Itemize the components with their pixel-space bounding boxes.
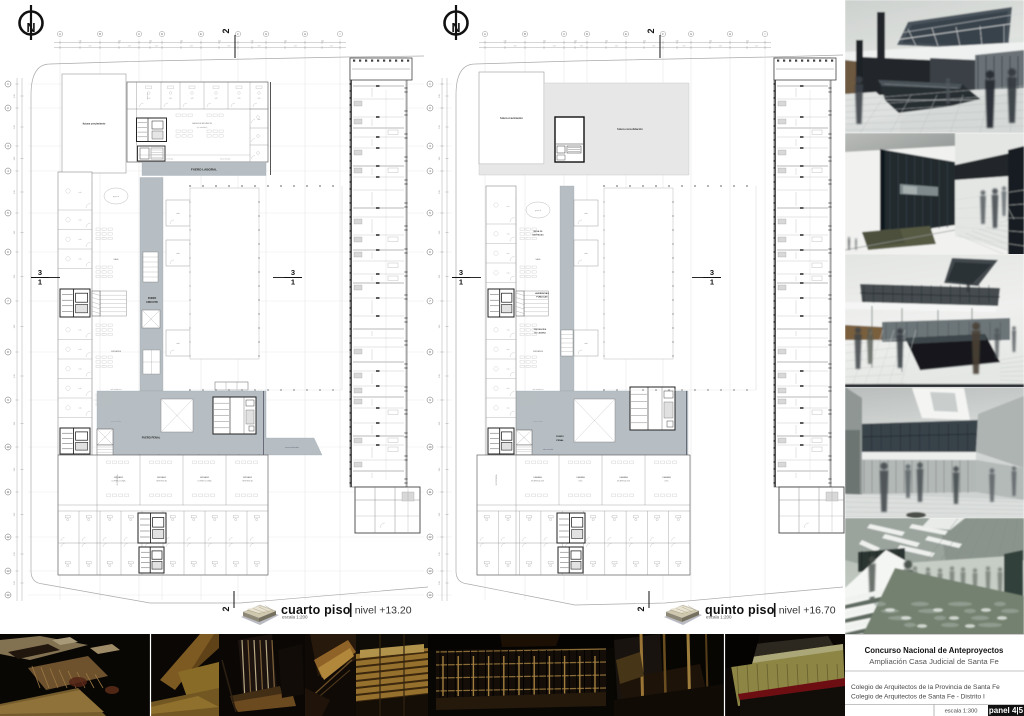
svg-text:3.65: 3.65 (615, 45, 618, 47)
svg-text:3.65: 3.65 (719, 45, 722, 47)
svg-text:7.30: 7.30 (675, 40, 678, 42)
svg-text:3.65: 3.65 (330, 45, 333, 47)
svg-text:FUERO LABORAL: FUERO LABORAL (191, 168, 217, 172)
svg-text:3: 3 (38, 268, 42, 277)
svg-text:nivel +13.20: nivel +13.20 (355, 605, 412, 617)
svg-text:3.95: 3.95 (439, 513, 441, 517)
svg-text:3.65: 3.65 (514, 45, 517, 47)
svg-text:2: 2 (646, 28, 656, 33)
svg-text:E: E (200, 32, 202, 36)
svg-text:DE APELACION: DE APELACION (531, 480, 545, 483)
svg-text:sala: sala (79, 220, 82, 222)
svg-text:3.65: 3.65 (227, 45, 230, 47)
svg-text:sala: sala (507, 330, 510, 332)
svg-text:futura crecimiento: futura crecimiento (500, 116, 523, 120)
svg-text:1: 1 (38, 278, 42, 287)
svg-text:7.30: 7.30 (503, 40, 506, 42)
svg-text:sala: sala (507, 206, 510, 208)
svg-text:H: H (729, 32, 731, 36)
svg-text:3.65: 3.65 (553, 45, 556, 47)
svg-text:3.65: 3.65 (755, 45, 758, 47)
svg-text:3.65: 3.65 (155, 45, 158, 47)
svg-text:DE CAMARA: DE CAMARA (534, 332, 546, 335)
svg-text:E: E (625, 32, 627, 36)
svg-text:escala 1:300: escala 1:300 (945, 709, 978, 715)
svg-text:escala 1:200: escala 1:200 (706, 615, 732, 620)
svg-text:3.65: 3.65 (294, 45, 297, 47)
svg-text:3: 3 (291, 268, 295, 277)
svg-text:3.95: 3.95 (14, 190, 16, 194)
svg-text:3.65: 3.65 (257, 98, 260, 100)
svg-text:acceso detenidos: acceso detenidos (285, 446, 299, 449)
svg-text:Ampliación Casa Judicial de Sa: Ampliación Casa Judicial de Santa Fe (869, 657, 998, 666)
svg-text:7.30: 7.30 (250, 40, 253, 42)
svg-text:sala: sala (507, 349, 510, 351)
svg-text:3.95: 3.95 (439, 125, 441, 129)
svg-text:3.95: 3.95 (439, 157, 441, 161)
svg-text:sala: sala (507, 388, 510, 390)
svg-text:grupo de: grupo de (113, 196, 119, 198)
svg-text:FUERO: FUERO (148, 297, 157, 300)
svg-text:sala: sala (584, 213, 587, 215)
svg-text:3.95: 3.95 (14, 374, 16, 378)
svg-text:DEFENSORIA: DEFENSORIA (534, 328, 547, 331)
svg-text:H: H (304, 32, 306, 36)
svg-text:CIVIL: CIVIL (664, 481, 669, 483)
svg-text:ENTRADAS: ENTRADAS (532, 234, 544, 237)
svg-text:SALA: SALA (536, 258, 542, 261)
svg-text:3.65: 3.65 (190, 45, 193, 47)
svg-text:3.65: 3.65 (89, 45, 92, 47)
svg-text:3.65: 3.65 (190, 98, 193, 100)
svg-text:AUDIENCIAS: AUDIENCIAS (535, 292, 549, 295)
svg-text:SENTENCIA: SENTENCIA (156, 480, 167, 483)
svg-text:SECRETARIA: SECRETARIA (116, 474, 119, 486)
svg-text:C: C (563, 32, 565, 36)
svg-text:mesa entrada: mesa entrada (220, 158, 230, 161)
svg-text:aud.: aud. (257, 119, 261, 121)
svg-text:CIVIL: CIVIL (578, 481, 583, 483)
svg-text:C: C (138, 32, 140, 36)
svg-text:7.30: 7.30 (78, 40, 81, 42)
svg-text:mesa entrada: mesa entrada (163, 158, 173, 161)
svg-text:nivel +16.70: nivel +16.70 (779, 605, 836, 617)
svg-text:sala: sala (507, 273, 510, 275)
svg-text:CIRCUITO: CIRCUITO (146, 301, 158, 304)
svg-text:DE APELACION: DE APELACION (617, 480, 631, 483)
svg-text:CAMARA: CAMARA (576, 476, 585, 479)
svg-text:3.65: 3.65 (580, 45, 583, 47)
svg-text:sala: sala (79, 239, 82, 241)
svg-text:1: 1 (291, 278, 295, 287)
svg-text:3.95: 3.95 (14, 552, 16, 556)
svg-text:3.95: 3.95 (439, 374, 441, 378)
svg-text:A: A (484, 32, 486, 36)
svg-text:G: G (265, 32, 267, 36)
svg-text:JUZGADO: JUZGADO (243, 476, 253, 479)
svg-text:7.30: 7.30 (543, 40, 546, 42)
svg-text:3.95: 3.95 (439, 422, 441, 426)
svg-text:3.95: 3.95 (14, 125, 16, 129)
svg-text:3.95: 3.95 (14, 513, 16, 517)
svg-text:N: N (451, 21, 460, 35)
svg-text:JUZGADO: JUZGADO (200, 476, 210, 479)
svg-text:3.95: 3.95 (439, 468, 441, 472)
svg-text:3.95: 3.95 (439, 231, 441, 235)
svg-text:3.65: 3.65 (258, 45, 261, 47)
svg-text:sala: sala (507, 234, 510, 236)
svg-text:N: N (26, 21, 35, 35)
svg-text:sala: sala (79, 408, 82, 410)
svg-text:sala: sala (176, 253, 179, 255)
svg-text:sala: sala (507, 253, 510, 255)
svg-text:CORRECCIONAL: CORRECCIONAL (197, 480, 211, 483)
svg-text:3.65: 3.65 (214, 98, 217, 100)
svg-text:7.30: 7.30 (218, 40, 221, 42)
svg-text:sala: sala (79, 259, 82, 261)
svg-text:3.95: 3.95 (14, 422, 16, 426)
svg-text:B: B (524, 32, 526, 36)
svg-text:3.95: 3.95 (14, 157, 16, 161)
svg-text:3.95: 3.95 (439, 325, 441, 329)
svg-text:panel 4|5: panel 4|5 (989, 706, 1024, 715)
svg-text:3.65: 3.65 (169, 98, 172, 100)
svg-text:3.95: 3.95 (439, 94, 441, 98)
svg-text:3: 3 (710, 268, 714, 277)
svg-text:sala: sala (79, 349, 82, 351)
svg-text:Concurso Nacional de Anteproye: Concurso Nacional de Anteproyectos (865, 646, 1004, 655)
svg-text:1: 1 (459, 278, 463, 287)
svg-text:sala: sala (176, 343, 179, 345)
svg-text:sala audiencias: sala audiencias (111, 389, 122, 391)
svg-text:sala: sala (507, 408, 510, 410)
svg-text:JUZGADOS: JUZGADOS (111, 350, 122, 353)
svg-text:sala: sala (79, 192, 82, 194)
svg-text:3.95: 3.95 (439, 552, 441, 556)
svg-text:(en módulos): (en módulos) (197, 127, 208, 129)
svg-text:7.30: 7.30 (284, 40, 287, 42)
svg-text:escala 1:200: escala 1:200 (282, 615, 308, 620)
svg-text:7.30: 7.30 (605, 40, 608, 42)
svg-text:1: 1 (710, 278, 714, 287)
svg-text:2: 2 (221, 606, 231, 611)
svg-text:sala: sala (584, 343, 587, 345)
svg-text:JUZGADOS: JUZGADOS (533, 350, 544, 353)
svg-text:3.95: 3.95 (439, 581, 441, 585)
svg-text:7.30: 7.30 (574, 40, 577, 42)
svg-text:sala: sala (79, 369, 82, 371)
svg-text:futura crecimiento: futura crecimiento (83, 122, 106, 126)
svg-text:3.95: 3.95 (14, 581, 16, 585)
svg-text:3.95: 3.95 (439, 275, 441, 279)
svg-text:G: G (690, 32, 692, 36)
svg-text:FUERO PENAL: FUERO PENAL (142, 436, 161, 440)
svg-text:Colegio de Arquitectos de la P: Colegio de Arquitectos de la Provincia d… (851, 684, 1000, 691)
svg-text:FUERO: FUERO (556, 436, 564, 438)
svg-text:3.65: 3.65 (237, 98, 240, 100)
svg-text:3.95: 3.95 (14, 325, 16, 329)
svg-text:7.30: 7.30 (321, 40, 324, 42)
svg-text:3.65: 3.65 (128, 45, 131, 47)
svg-text:3: 3 (459, 268, 463, 277)
svg-text:sala: sala (176, 213, 179, 215)
svg-text:SECRETARIA: SECRETARIA (495, 474, 498, 486)
svg-text:3.95: 3.95 (14, 468, 16, 472)
svg-text:PENAL: PENAL (556, 439, 564, 442)
svg-text:7.30: 7.30 (746, 40, 749, 42)
svg-text:3.95: 3.95 (14, 275, 16, 279)
svg-text:grupo de: grupo de (535, 210, 541, 212)
svg-text:PUBLICAS: PUBLICAS (536, 296, 548, 299)
svg-text:Colegio de Arquitectos de Sant: Colegio de Arquitectos de Santa Fe - Dis… (851, 694, 985, 701)
svg-text:JUZGADO: JUZGADO (157, 476, 167, 479)
svg-text:CAMARA: CAMARA (619, 476, 628, 479)
svg-text:sala: sala (79, 388, 82, 390)
svg-text:futura consolidación: futura consolidación (617, 127, 643, 131)
svg-text:CAMARA: CAMARA (533, 476, 542, 479)
svg-text:3.95: 3.95 (14, 94, 16, 98)
svg-text:7.30: 7.30 (180, 40, 183, 42)
svg-text:2: 2 (221, 28, 231, 33)
svg-text:D: D (586, 32, 588, 36)
svg-text:A: A (59, 32, 61, 36)
svg-text:3.65: 3.65 (683, 45, 686, 47)
svg-text:SALA: SALA (114, 258, 120, 261)
svg-text:sala: sala (507, 369, 510, 371)
svg-text:CAMARA: CAMARA (662, 476, 671, 479)
svg-text:3.95: 3.95 (439, 190, 441, 194)
svg-text:SALA DE REUNION: SALA DE REUNION (192, 122, 212, 125)
svg-text:SENTENCIA: SENTENCIA (242, 480, 253, 483)
svg-text:7.30: 7.30 (643, 40, 646, 42)
svg-text:sala: sala (584, 253, 587, 255)
svg-text:B: B (99, 32, 101, 36)
svg-text:2: 2 (636, 606, 646, 611)
svg-text:sala: sala (79, 330, 82, 332)
svg-text:sala recorrido: sala recorrido (543, 448, 553, 451)
svg-text:MESA DE: MESA DE (533, 230, 543, 233)
svg-text:sala audiencias: sala audiencias (533, 389, 544, 391)
svg-text:7.30: 7.30 (118, 40, 121, 42)
svg-text:3.65: 3.65 (652, 45, 655, 47)
svg-text:7.30: 7.30 (709, 40, 712, 42)
svg-text:3.95: 3.95 (14, 231, 16, 235)
svg-text:D: D (161, 32, 163, 36)
svg-text:7.30: 7.30 (149, 40, 152, 42)
